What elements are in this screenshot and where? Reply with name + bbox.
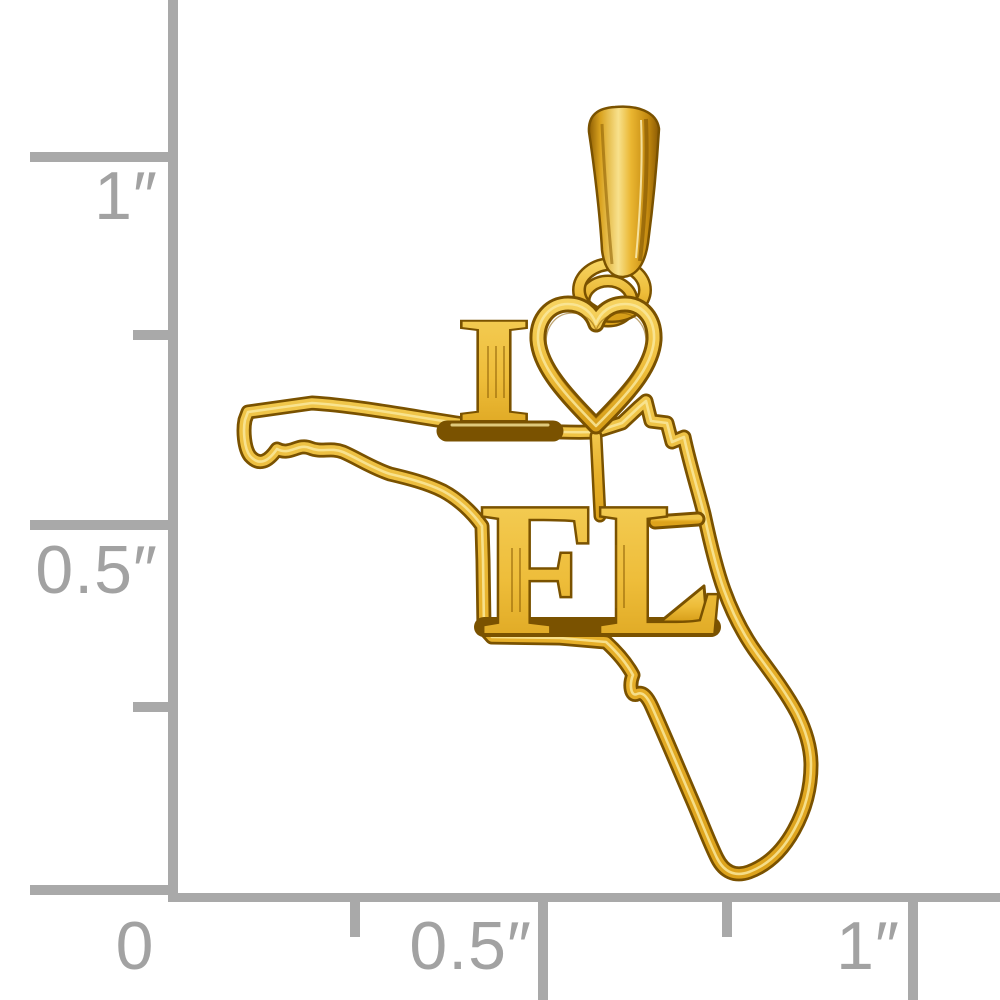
engraving-state-abbr: FL [480,465,727,675]
bail [589,107,659,277]
product-photo-canvas: 1″ 0.5″ 0 0.5″ 1″ [0,0,1000,1000]
pendant-image: I FL ♥ [0,0,1000,1000]
engraving-letter-i: I [456,286,532,452]
